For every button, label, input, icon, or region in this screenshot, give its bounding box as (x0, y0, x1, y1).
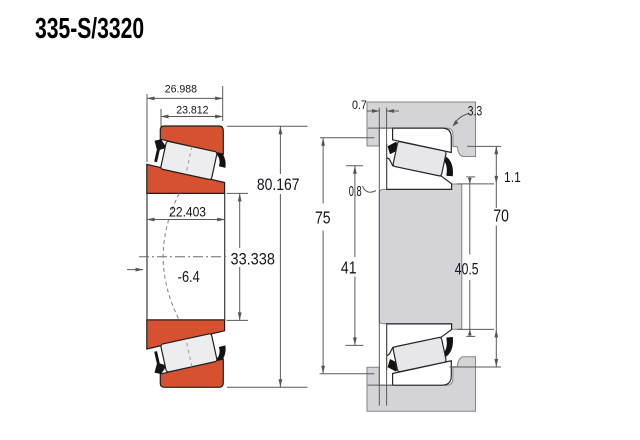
svg-text:3.3: 3.3 (468, 103, 483, 119)
svg-text:33.338: 33.338 (231, 251, 275, 269)
svg-text:23.812: 23.812 (176, 104, 208, 116)
svg-text:40.5: 40.5 (455, 261, 479, 279)
svg-text:0.7: 0.7 (352, 100, 367, 112)
svg-text:41: 41 (341, 259, 357, 278)
svg-text:26.988: 26.988 (165, 83, 197, 95)
svg-text:70: 70 (493, 207, 509, 226)
svg-text:-6.4: -6.4 (178, 269, 200, 287)
svg-text:1.1: 1.1 (504, 169, 521, 186)
svg-text:75: 75 (315, 209, 331, 228)
svg-text:80.167: 80.167 (257, 176, 300, 195)
svg-text:22.403: 22.403 (169, 204, 206, 220)
